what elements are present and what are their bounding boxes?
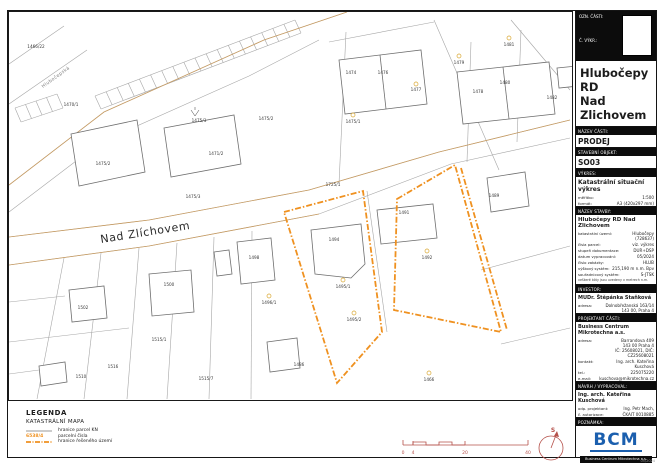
section-value: Katastrální situační výkres <box>576 177 656 195</box>
gray-line-symbol <box>26 429 58 433</box>
legend-label: hranice parcel KN <box>58 428 98 433</box>
elevation-note: veškeré kóty jsou uvedeny v metrech n.m. <box>576 277 656 284</box>
tb-row-value: 225075220 <box>631 370 654 375</box>
tb-row-label: adresa: <box>578 303 594 308</box>
north-arrow: S <box>539 427 563 460</box>
legend-label: hranice řešeného území <box>58 439 112 444</box>
tb-row-label: datum vypracování: <box>578 254 618 259</box>
tb-row: datum vypracování:05/2024 <box>576 253 656 259</box>
tb-row-label: číslo zakázky: <box>578 260 606 265</box>
dashdot-line-symbol <box>26 440 58 444</box>
section-nazev-casti: NÁZEV ČÁSTI: PRODEJ <box>576 126 656 147</box>
parcel-number-label: 1489 <box>489 193 500 198</box>
section-bar: NÁVRH / VYPRACOVAL: <box>576 382 656 390</box>
legend-subtitle: KATASTRÁLNÍ MAPA <box>26 419 246 425</box>
tb-row-value: Hlubočepy (728637) <box>614 231 654 241</box>
parcel-number-label: 1480 <box>500 80 511 85</box>
parcel-number-label: 1478 <box>473 89 484 94</box>
section-value: Ing. arch. Kateřina Kuschová <box>576 390 656 406</box>
legend-label: parcelní čísla <box>58 434 87 439</box>
tb-row: katastrální území:Hlubočepy (728637) <box>576 230 656 241</box>
legend: LEGENDA KATASTRÁLNÍ MAPA hranice parcel … <box>26 409 246 445</box>
drawing-number-box <box>622 15 652 56</box>
parcel-number-label: 1725/1 <box>326 182 341 187</box>
parcel-number-label: 1510 <box>76 374 87 379</box>
parcel-number-label: 1516 <box>108 364 119 369</box>
parcel-number-label: 1515/7 <box>199 376 214 381</box>
section-bar: STAVEBNÍ OBJEKT: <box>576 148 656 156</box>
scale-tick: 20 <box>462 450 468 456</box>
scale-tick: 0 <box>402 450 405 456</box>
parcel-number-label: 1481 <box>504 42 515 47</box>
logo-area: BCM Business Centrum Mikrotechna a.s. <box>576 426 656 463</box>
section-value: SO03 <box>576 156 656 169</box>
parcel-number-label: 1479 <box>454 60 465 65</box>
tb-row-label: adresa: <box>578 338 594 343</box>
tb-row-value: viz. výkres <box>632 242 654 247</box>
parcel-number-label: 1475/2 <box>96 161 111 166</box>
tb-row-value: 215,190 m n.m. Bpv <box>612 266 654 271</box>
tree-symbol <box>427 371 431 375</box>
project-title: Hlubočepy RD Nad Zlichovem <box>576 61 656 126</box>
tb-row-value: S-JTSK <box>641 272 654 277</box>
parcel-number-label: 1482 <box>547 95 558 100</box>
parcel-number-label: 1475/3 <box>192 118 207 123</box>
legend-row: hranice řešeného území <box>26 439 246 445</box>
road-label: Hlubočepská <box>40 64 71 89</box>
section-bar: PROJEKTANT ČÁSTI: <box>576 314 656 322</box>
tb-row-label: měřítko: <box>578 195 596 200</box>
tb-row-label: souřadnicový systém: <box>578 272 622 277</box>
parcel-number-sample: 6538/4 <box>26 434 43 439</box>
section-bar: INVESTOR: <box>576 285 656 293</box>
section-bar: NÁZEV ČÁSTI: <box>576 127 656 135</box>
parcel-number-label: 1502 <box>78 305 89 310</box>
tree-symbol <box>351 113 355 117</box>
bcm-logo: BCM <box>590 432 641 452</box>
parcel-number-label: 1471/2 <box>209 151 224 156</box>
section-stavebni-objekt: STAVEBNÍ OBJEKT: SO03 <box>576 147 656 168</box>
tree-symbol <box>352 311 356 315</box>
tb-row-label: kontakt: <box>578 359 596 364</box>
section-rows: měřítko:1:500formát:A3 (420x297 mm) <box>576 194 656 206</box>
tb-row-label: č. autorizace: <box>578 412 606 417</box>
section-investor: INVESTOR: MUDr. Štěpánka Staňková adresa… <box>576 284 656 313</box>
tb-row: adresa:Dolnobřežanská 163/14 143 00, Pra… <box>576 302 656 313</box>
street-label: Nad Zlíchovem <box>99 219 191 246</box>
parcel-number-label: 1494 <box>329 237 340 242</box>
parcel-number-label: 1486 <box>294 362 305 367</box>
tb-row: adresa:Barrandova 409 143 00 Praha 4 IČ:… <box>576 337 656 358</box>
parcel-number-label: 1495/1 <box>336 284 351 289</box>
tb-row: kontakt:Ing. arch. Kateřina Kuschová <box>576 358 656 369</box>
tree-symbol <box>457 54 461 58</box>
section-bar: NÁZEV STAVBY: <box>576 207 656 215</box>
section-value: Hlubočepy RD Nad Zlichovem <box>576 215 656 231</box>
section-poznamka: POZNÁMKA: <box>576 417 656 426</box>
tb-row-label: katastrální území: <box>578 231 614 236</box>
tb-row-label: odp. projektant: <box>578 406 610 411</box>
tree-symbol <box>507 36 511 40</box>
section-rows: adresa:Barrandova 409 143 00 Praha 4 IČ:… <box>576 337 656 381</box>
section-vykres: VÝKRES: Katastrální situační výkres měří… <box>576 168 656 206</box>
tb-row-value: A3 (420x297 mm) <box>617 201 654 206</box>
scale-bar: 0 4 20 40 <box>402 440 531 456</box>
part-number-label: OZN. ČÁSTI: <box>579 14 603 19</box>
tb-row-value: HLUB <box>643 260 654 265</box>
cadastral-map: 1466/221470/11475/31475/21471/21475/2147… <box>9 12 572 400</box>
title-block: OZN. ČÁSTI: Č. VÝKR.: Hlubočepy RD Nad Z… <box>575 10 657 458</box>
parcel-number-label: 1475/3 <box>186 194 201 199</box>
parcel-number-label: 1476 <box>378 70 389 75</box>
tb-row-value: ČKAIT 0010885 <box>622 412 654 417</box>
section-rows: adresa:Dolnobřežanská 163/14 143 00, Pra… <box>576 302 656 313</box>
drawing-number-label: Č. VÝKR.: <box>579 38 597 43</box>
scalebar-and-north: 0 4 20 40 S <box>393 423 577 467</box>
section-nazev-stavby: NÁZEV STAVBY: Hlubočepy RD Nad Zlichovem… <box>576 206 656 284</box>
section-rows: katastrální území:Hlubočepy (728637)čísl… <box>576 230 656 277</box>
section-bar: POZNÁMKA: <box>576 418 656 426</box>
scale-tick: 40 <box>525 450 531 456</box>
parcel-number-label: 1491 <box>399 210 410 215</box>
tb-row-value: DUR+DSP <box>633 248 654 253</box>
section-projektant: PROJEKTANT ČÁSTI: Business Centrum Mikro… <box>576 313 656 381</box>
parcel-number-label: 1466/22 <box>27 44 45 49</box>
tree-symbol <box>341 278 345 282</box>
section-rows: odp. projektant:Ing. Petr Mach,č. autori… <box>576 405 656 417</box>
section-bar: VÝKRES: <box>576 169 656 177</box>
parcel-number-label: 1496/1 <box>262 300 277 305</box>
tb-row-value: Ing. arch. Kateřina Kuschová <box>596 359 654 369</box>
tb-row-value: Dolnobřežanská 163/14 143 00, Praha 4 <box>606 303 655 313</box>
tb-row: stupeň dokumentace:DUR+DSP <box>576 247 656 253</box>
parcel-number-label: 1515/1 <box>152 337 167 342</box>
tb-row-label: stupeň dokumentace: <box>578 248 621 253</box>
parcel-number-label: 1475/2 <box>259 116 274 121</box>
parcel-number-label: 1495/2 <box>347 317 362 322</box>
tree-symbol <box>425 249 429 253</box>
tb-row-value: 1:500 <box>642 195 654 200</box>
parcel-number-label: 1470/1 <box>64 102 79 107</box>
parcel-number-label: 1492 <box>422 255 433 260</box>
section-value: Business Centrum Mikrotechna a.s. <box>576 322 656 338</box>
parcel-number-label: 1500 <box>164 282 175 287</box>
scale-tick: 4 <box>412 450 415 456</box>
tb-row: souřadnicový systém:S-JTSK <box>576 271 656 277</box>
tb-row-value: Ing. Petr Mach, <box>623 406 654 411</box>
parcel-number-label: 1498 <box>249 255 260 260</box>
north-label: S <box>551 427 555 434</box>
parcel-number-label: 1474 <box>346 70 357 75</box>
section-navrh: NÁVRH / VYPRACOVAL: Ing. arch. Kateřina … <box>576 381 656 417</box>
tb-row-value: Barrandova 409 143 00 Praha 4 IČ: 256080… <box>594 338 654 358</box>
tree-symbol <box>267 294 271 298</box>
sheet-footnote: 05/2024 <box>575 459 655 463</box>
parcel-number-label: 1477 <box>411 87 422 92</box>
parcel-number-label: 1466 <box>424 377 435 382</box>
tb-row-value: 05/2024 <box>637 254 654 259</box>
tb-row-label: formát: <box>578 201 594 206</box>
tb-row-label: tel.: <box>578 370 587 375</box>
tb-row-value: kuschova@mikrotechna.cz <box>599 376 654 381</box>
section-value: MUDr. Štěpánka Staňková <box>576 293 656 303</box>
legend-title: LEGENDA <box>26 409 246 417</box>
section-value: PRODEJ <box>576 135 656 148</box>
title-block-header: OZN. ČÁSTI: Č. VÝKR.: <box>576 11 656 61</box>
tb-row: výškový systém:215,190 m n.m. Bpv <box>576 265 656 271</box>
tb-row-label: výškový systém: <box>578 266 612 271</box>
tb-row-label: e-mail: <box>578 376 593 381</box>
building-outlines <box>39 50 572 386</box>
parcel-number-label: 1475/1 <box>346 119 361 124</box>
conifer-symbol <box>191 107 199 116</box>
tb-row-label: čísla parcel: <box>578 242 603 247</box>
